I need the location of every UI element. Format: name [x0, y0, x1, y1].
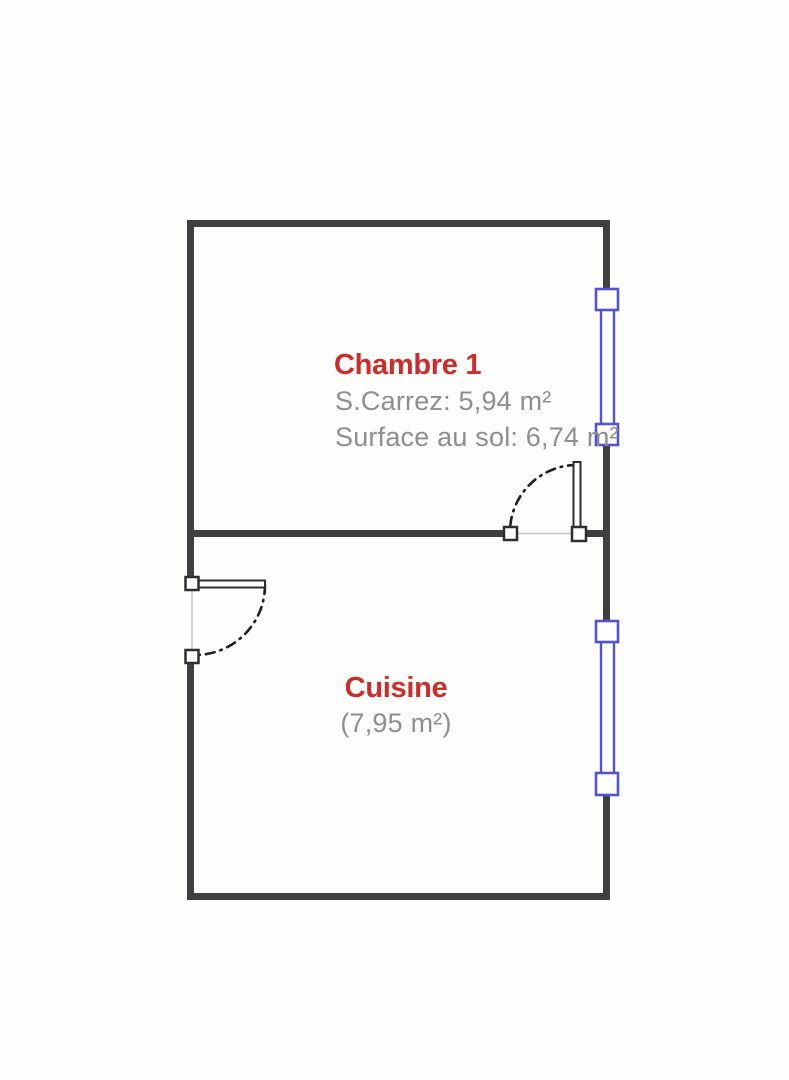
divider-wall-stub [587, 530, 603, 537]
door-interior-hinge-icon [572, 527, 586, 541]
door-interior [504, 462, 586, 541]
wall-left-upper [187, 220, 194, 578]
door-kitchen-jamb-bottom-icon [186, 650, 199, 663]
door-interior-leaf-icon [574, 462, 581, 527]
wall-bottom [187, 893, 610, 900]
window-cuisine-glazing-icon [601, 642, 614, 775]
window-chambre-frame-top-icon [596, 289, 618, 310]
outer-walls [187, 220, 610, 900]
door-kitchen-leaf-icon [198, 581, 265, 588]
floor-plan-drawing [0, 0, 789, 1080]
wall-left-lower [187, 663, 194, 900]
window-cuisine-frame-top-icon [596, 621, 618, 642]
window-chambre-glazing-icon [601, 308, 614, 426]
window-chambre [596, 289, 618, 445]
door-interior-swing-arc-icon [510, 465, 577, 532]
window-cuisine-frame-bottom-icon [596, 773, 618, 795]
divider-wall-main [187, 530, 507, 537]
wall-top [187, 220, 610, 227]
door-kitchen-swing-arc-icon [195, 585, 265, 655]
window-cuisine [596, 621, 618, 795]
door-kitchen-hinge-icon [186, 577, 199, 590]
window-chambre-frame-bottom-icon [596, 424, 618, 445]
floor-plan: Chambre 1 S.Carrez: 5,94 m² Surface au s… [0, 0, 789, 1080]
door-kitchen [186, 577, 266, 663]
door-interior-jamb-left-icon [504, 527, 517, 540]
